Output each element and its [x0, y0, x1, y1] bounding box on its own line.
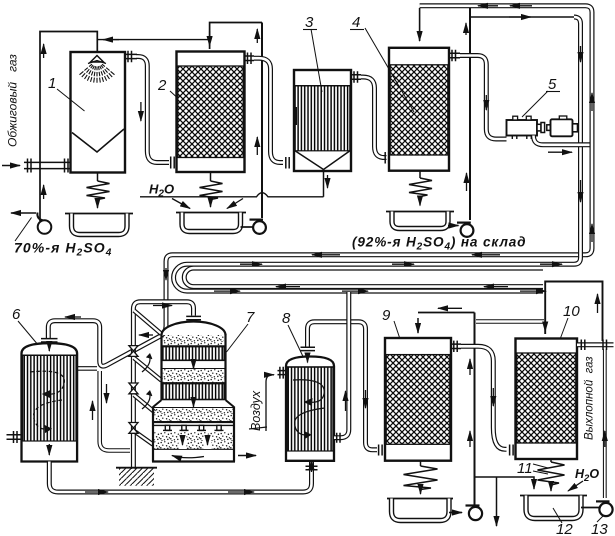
svg-text:7: 7 — [246, 309, 255, 326]
svg-text:8: 8 — [282, 310, 291, 327]
svg-text:1: 1 — [48, 75, 56, 92]
svg-text:12: 12 — [556, 521, 573, 536]
svg-text:3: 3 — [305, 14, 314, 31]
svg-text:Обжиговый газ: Обжиговый газ — [6, 54, 20, 147]
svg-text:13: 13 — [591, 521, 608, 536]
svg-text:Воздух: Воздух — [249, 390, 263, 431]
svg-text:9: 9 — [382, 307, 391, 324]
svg-text:2: 2 — [157, 77, 167, 94]
svg-text:5: 5 — [548, 76, 557, 93]
svg-text:Выхлопной газ: Выхлопной газ — [584, 356, 596, 440]
svg-text:10: 10 — [563, 303, 580, 320]
svg-text:11: 11 — [517, 460, 533, 477]
svg-text:6: 6 — [12, 306, 21, 323]
svg-text:(92%-я H2SO4) на склад: (92%-я H2SO4) на склад — [352, 235, 526, 253]
svg-text:4: 4 — [352, 14, 360, 31]
svg-text:H2O: H2O — [575, 467, 599, 484]
svg-text:70%-я H2SO4: 70%-я H2SO4 — [14, 240, 112, 259]
